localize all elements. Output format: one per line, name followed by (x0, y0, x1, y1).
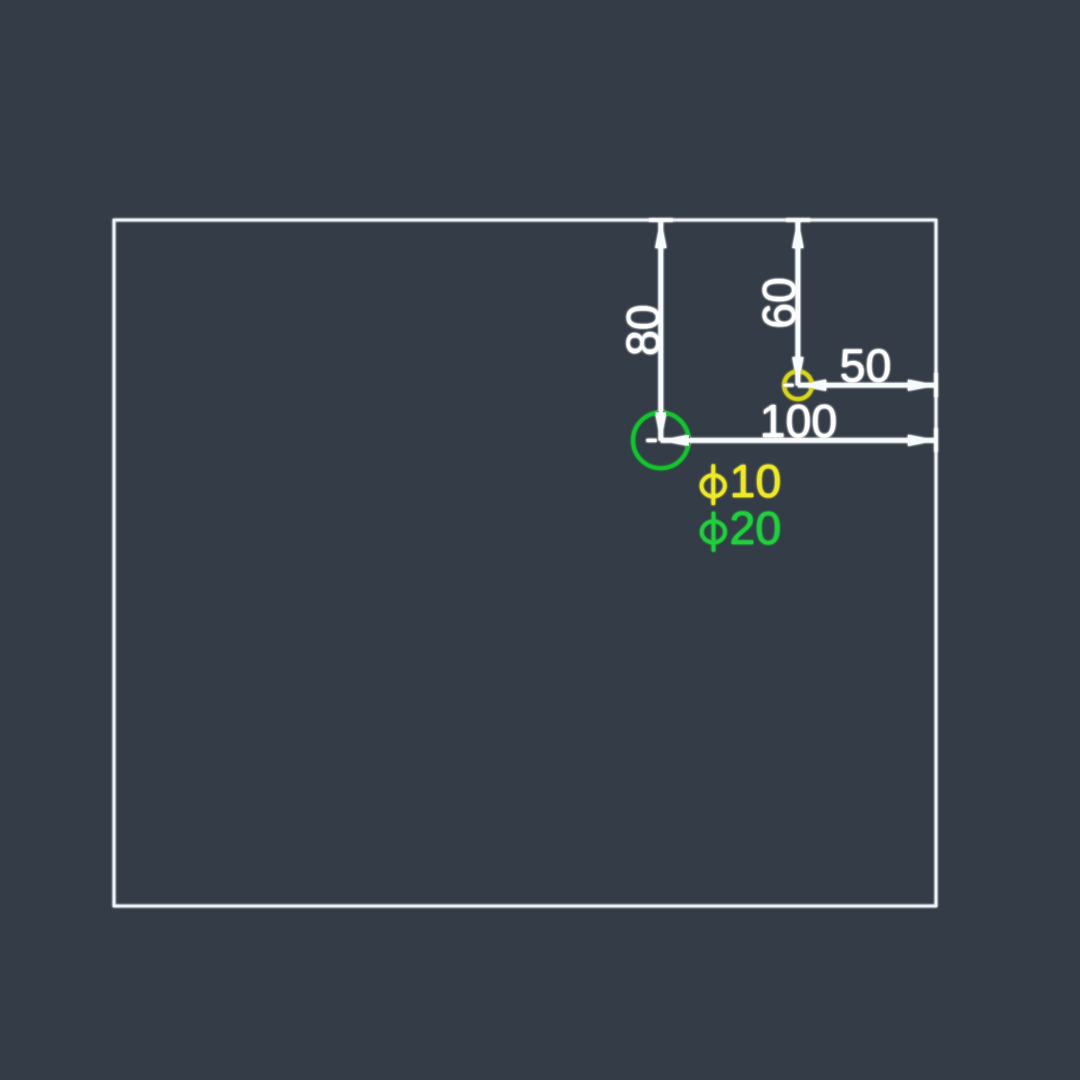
svg-text:80: 80 (617, 304, 669, 356)
svg-text:20: 20 (730, 502, 782, 554)
svg-text:60: 60 (753, 277, 805, 329)
svg-text:100: 100 (760, 395, 838, 447)
svg-text:50: 50 (840, 340, 892, 392)
svg-text:10: 10 (730, 455, 782, 507)
